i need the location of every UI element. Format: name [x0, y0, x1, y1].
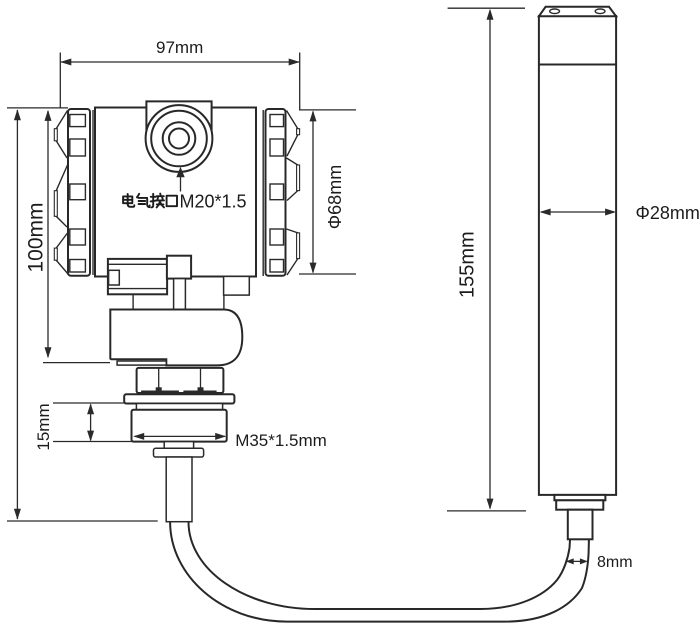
svg-text:15mm: 15mm	[34, 403, 53, 450]
svg-text:M20*1.5: M20*1.5	[180, 192, 247, 212]
svg-text:100mm: 100mm	[25, 202, 48, 272]
svg-text:155mm: 155mm	[457, 231, 479, 298]
svg-text:Φ28mm: Φ28mm	[636, 203, 700, 223]
svg-text:8mm: 8mm	[597, 554, 633, 571]
svg-text:97mm: 97mm	[156, 38, 203, 57]
svg-text:M35*1.5mm: M35*1.5mm	[235, 431, 327, 450]
svg-text:Φ68mm: Φ68mm	[325, 165, 345, 229]
